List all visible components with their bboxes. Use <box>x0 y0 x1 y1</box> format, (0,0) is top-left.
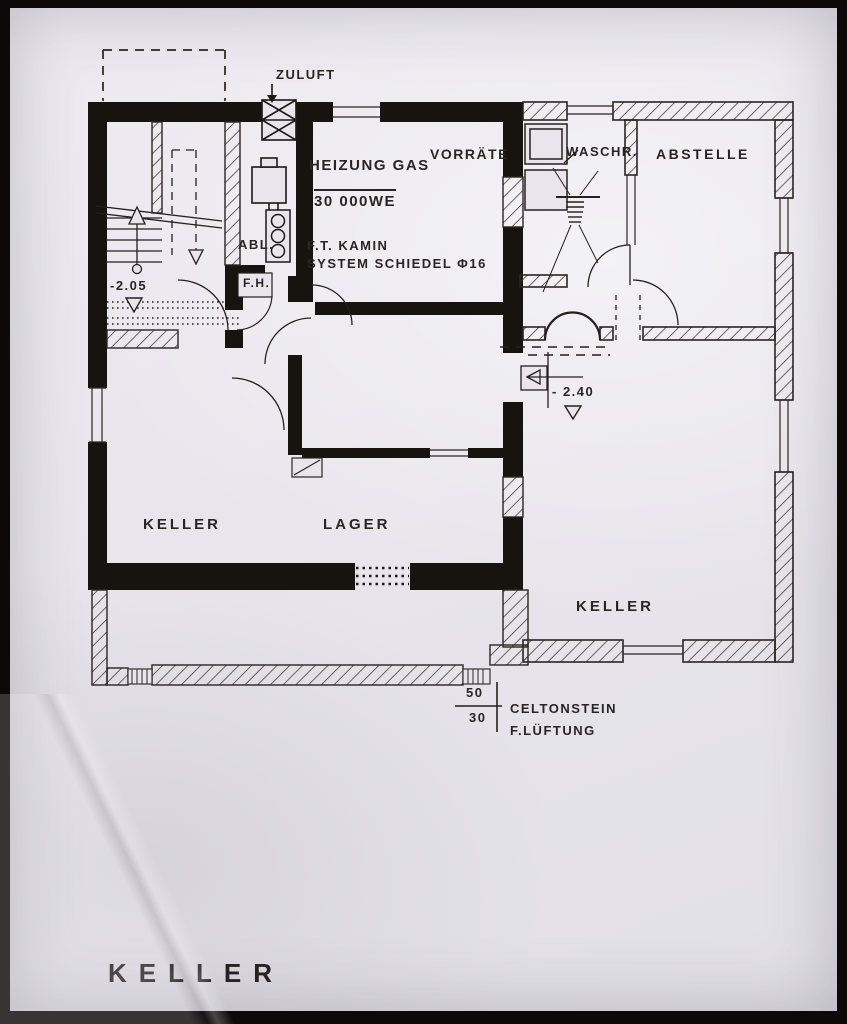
label-vent-50: 50 <box>466 686 483 699</box>
overhang-dashed-outline <box>103 50 225 101</box>
label-heizung-gas: HEIZUNG GAS <box>309 158 430 173</box>
label-waschr: WASCHR. <box>566 145 638 158</box>
label-lager: LAGER <box>323 517 391 532</box>
label-level-240: - 2.40 <box>552 385 594 398</box>
label-fh: F.H. <box>243 277 270 289</box>
scanned-floor-plan-photo: ZULUFT HEIZUNG GAS 30 000WE VORRÄTE WASC… <box>0 0 847 1024</box>
level-mark-keller <box>565 406 581 419</box>
label-heizung-we: 30 000WE <box>314 189 396 209</box>
label-celtonstein: CELTONSTEIN <box>510 702 617 715</box>
zuluft-shaft <box>262 100 296 140</box>
label-vorraete: VORRÄTE <box>430 147 509 161</box>
label-vent-30: 30 <box>469 711 486 724</box>
label-abl: ABL. <box>238 238 274 251</box>
gas-boiler <box>252 158 286 210</box>
plan-title: KELLER <box>108 958 284 989</box>
label-kamin-1: F.T. KAMIN <box>307 239 388 252</box>
label-zuluft: ZULUFT <box>276 68 336 81</box>
label-kamin-2: SYSTEM SCHIEDEL Φ16 <box>307 257 487 270</box>
level-mark-stair <box>126 298 142 312</box>
label-abstelle: ABSTELLE <box>656 147 750 161</box>
vent-keller-window <box>521 352 583 408</box>
label-keller-left: KELLER <box>143 517 221 532</box>
chimney-flue <box>266 210 290 262</box>
label-keller-right: KELLER <box>576 599 654 614</box>
annex-windows <box>567 106 792 654</box>
label-f-lueftung: F.LÜFTUNG <box>510 724 596 737</box>
door-arcs-annex <box>588 245 678 340</box>
label-level-205: -2.05 <box>110 279 147 292</box>
bottom-wall-dotted-opening <box>356 568 409 584</box>
